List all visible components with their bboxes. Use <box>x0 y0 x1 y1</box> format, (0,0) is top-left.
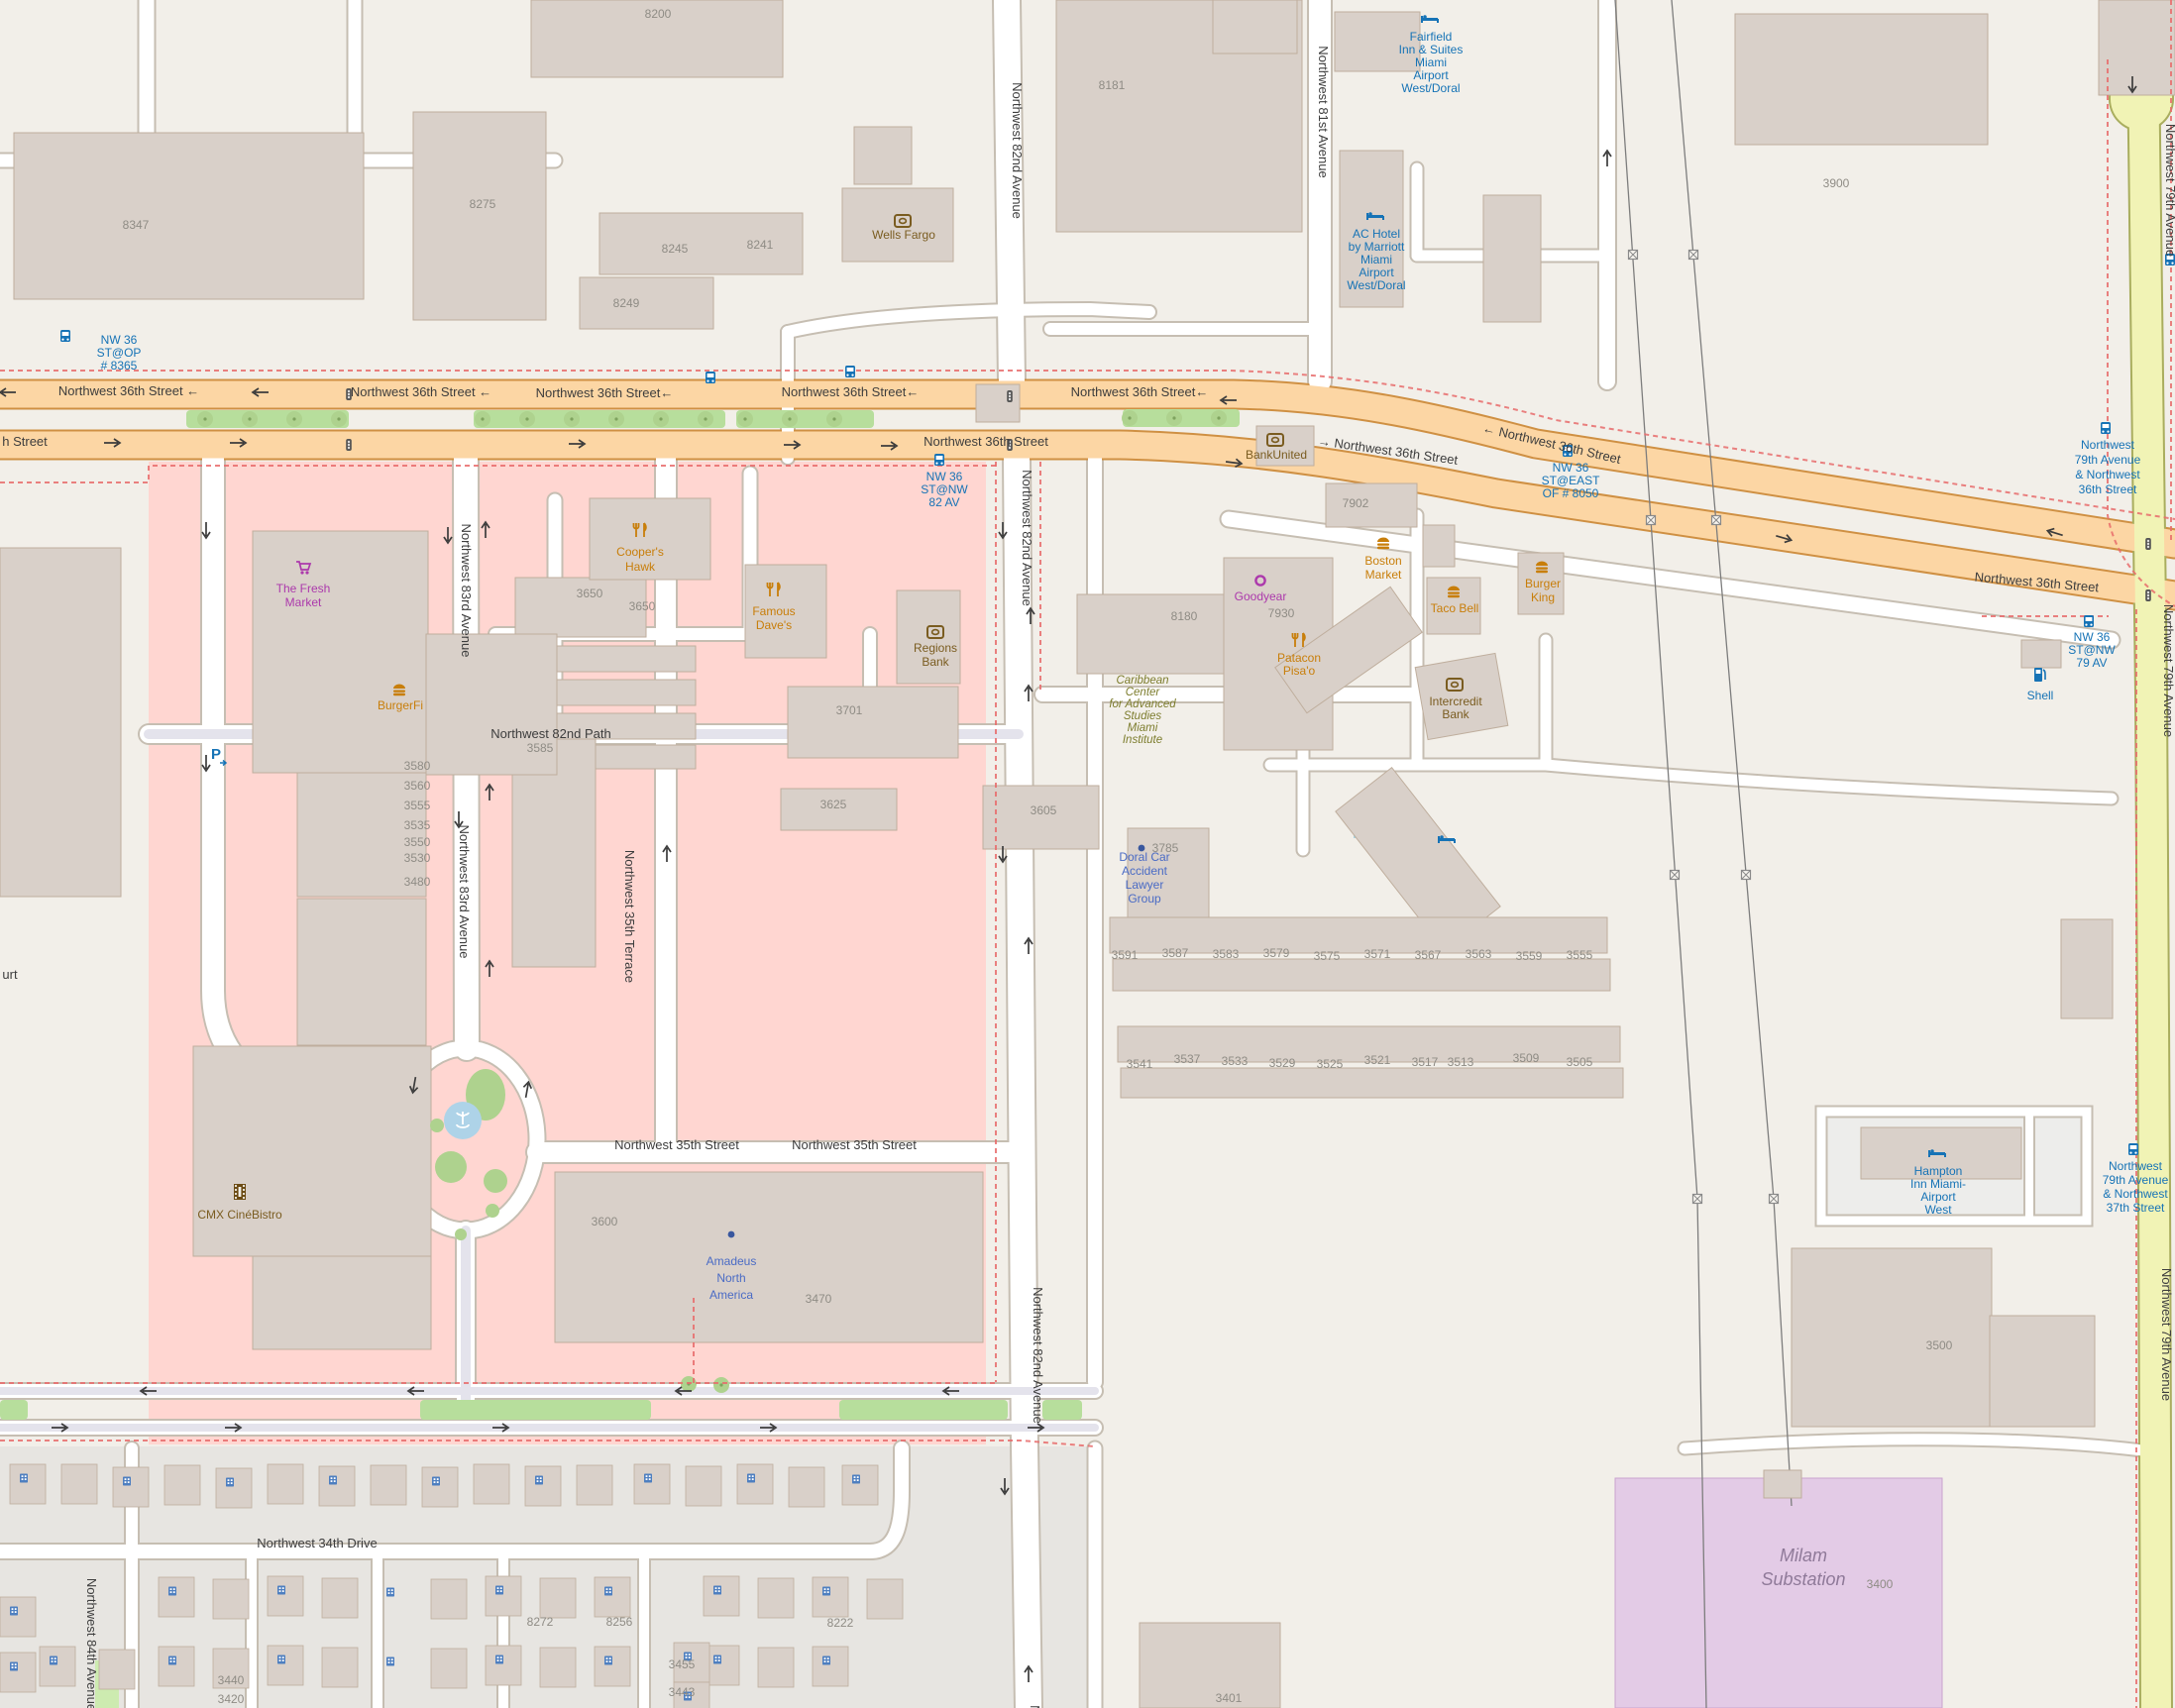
apt-icon <box>644 1474 652 1483</box>
poi-label-milam-substation: Substation <box>1761 1569 1845 1589</box>
poi-label-boston-market: Market <box>1365 568 1402 582</box>
poi-label-amadeus-north-america: America <box>709 1288 753 1302</box>
house-building <box>268 1464 303 1504</box>
house-building <box>813 1577 848 1617</box>
street-label: Northwest 79th Avenue <box>2159 1268 2174 1401</box>
poi-label-famous-daves: Famous <box>752 604 795 618</box>
dot-icon <box>728 1231 735 1238</box>
house-building <box>540 1578 576 1618</box>
building <box>854 127 912 184</box>
hotel-label-hampton-inn: West <box>1924 1203 1952 1217</box>
film-icon <box>234 1184 246 1200</box>
poi-label-burger-king: King <box>1531 590 1555 604</box>
housenumber-label: 3560 <box>404 779 431 793</box>
housenumber-label: 3600 <box>592 1215 618 1228</box>
house-building <box>0 1597 36 1637</box>
building <box>1764 1470 1801 1498</box>
house-building <box>113 1467 149 1507</box>
housenumber-label: 3650 <box>577 587 603 600</box>
bus-stop-label-nw-79-av-nw-37-st: & Northwest <box>2103 1187 2168 1201</box>
median-strip <box>0 1400 28 1420</box>
poi-label-goodyear: Goodyear <box>1235 589 1287 603</box>
fountain-icon <box>444 1102 482 1139</box>
busicon-icon <box>60 330 70 342</box>
tree-dot <box>743 417 746 420</box>
housenumber-label: 3541 <box>1127 1057 1153 1071</box>
tree-dot <box>832 417 835 420</box>
housenumber-label: 3505 <box>1567 1055 1593 1069</box>
house-building <box>319 1466 355 1506</box>
building <box>1121 1068 1623 1098</box>
housenumber-label: 8249 <box>613 296 640 310</box>
bus-stop-label-nw-36-st-nw-79-av: 79 AV <box>2076 656 2107 670</box>
housenumber-label: 3529 <box>1269 1056 1296 1070</box>
map-viewport[interactable]: P Northwest 36th Street ←Northwest 36th … <box>0 0 2175 1708</box>
building <box>413 112 546 320</box>
housenumber-label: 3555 <box>1567 948 1593 962</box>
poi-label-caribbean-center: Studies <box>1124 710 1162 722</box>
house-building <box>704 1576 739 1616</box>
hotel-label-ac-hotel-marriott: AC Hotel <box>1353 227 1400 241</box>
housenumber-label: 3583 <box>1213 947 1240 961</box>
apt-icon <box>50 1656 57 1665</box>
housenumber-label: 7902 <box>1343 496 1369 510</box>
housenumber-label: 3517 <box>1412 1055 1439 1069</box>
bed-icon <box>1422 15 1438 23</box>
housenumber-label: 3900 <box>1823 176 1850 190</box>
building <box>193 1046 431 1256</box>
apt-icon <box>495 1586 503 1595</box>
apt-icon <box>604 1587 612 1596</box>
street-label: Northwest 79th Avenue <box>2161 604 2175 737</box>
apt-icon <box>123 1477 131 1486</box>
poi-label-milam-substation: Milam <box>1780 1546 1827 1565</box>
tree-dot <box>481 417 484 420</box>
poi-label-wells-fargo: Wells Fargo <box>872 228 935 242</box>
poi-label-doral-car-accident-lawyer-group: Group <box>1128 892 1161 906</box>
housenumber-label: 3571 <box>1364 947 1391 961</box>
hotel-label-hampton-inn: Airport <box>1920 1190 1956 1204</box>
building <box>1335 12 1420 71</box>
street-label: Northwest 35th Terrace <box>622 850 637 983</box>
housenumber-label: 7930 <box>1268 606 1295 620</box>
house-building <box>867 1579 903 1619</box>
housenumber-label: 3587 <box>1162 946 1189 960</box>
house-building <box>61 1464 97 1504</box>
bus-stop-label-nw-36-st-op-8365: # 8365 <box>101 359 138 373</box>
housenumber-label: 3537 <box>1174 1052 1201 1066</box>
housenumber-label: 3567 <box>1415 948 1442 962</box>
housenumber-label: 3455 <box>669 1657 696 1671</box>
apt-icon <box>713 1586 721 1595</box>
building <box>1483 195 1541 322</box>
house-building <box>431 1579 467 1619</box>
white-road <box>1017 458 1029 1708</box>
house-building <box>474 1464 509 1504</box>
street-label: Northwest 34th Drive <box>257 1536 377 1550</box>
housenumber-label: 3440 <box>218 1673 245 1687</box>
street-label: Northwest 82nd Avenue <box>1010 82 1025 219</box>
bus-stop-label-nw-79-av-nw-36-st: 79th Avenue <box>2075 453 2141 467</box>
street-label: urt <box>2 967 18 982</box>
bus-stop-label-nw-79-av-nw-36-st: & Northwest <box>2075 468 2140 481</box>
apt-icon <box>604 1656 612 1665</box>
bus-stop-label-nw-36-st-east-of-8050: NW 36 <box>1553 461 1589 475</box>
street-label: Northwest 82nd Avenue <box>1020 470 1034 606</box>
poi-label-intercredit-bank: Intercredit <box>1429 694 1482 708</box>
substation-area <box>1615 1478 1942 1708</box>
housenumber-label: 8275 <box>470 197 496 211</box>
building <box>1213 0 1297 53</box>
bus-stop-label-nw-36-st-nw-82-av: NW 36 <box>926 470 963 483</box>
housenumber-label: 3535 <box>404 818 431 832</box>
traffic-light-icon <box>1007 390 1013 402</box>
bus-stop-label-nw-36-st-east-of-8050: OF # 8050 <box>1543 486 1599 500</box>
housenumber-label: 8241 <box>747 238 774 252</box>
poi-label-amadeus-north-america: Amadeus <box>707 1254 757 1268</box>
bus-stop-label-nw-79-av-nw-37-st: 79th Avenue <box>2103 1173 2169 1187</box>
housenumber-label: 3585 <box>527 741 554 755</box>
building <box>1326 483 1417 527</box>
bus-stop-label-nw-79-av-nw-36-st: Northwest <box>2081 438 2135 452</box>
tree-dot <box>788 417 791 420</box>
bus-stop-label-nw-36-st-op-8365: ST@OP <box>97 346 142 360</box>
housenumber-label: 3530 <box>404 851 431 865</box>
traffic-light-icon <box>2145 538 2151 550</box>
house-building <box>595 1647 630 1686</box>
house-building <box>595 1577 630 1617</box>
building <box>976 384 1020 422</box>
bus-stop-label-nw-36-st-nw-79-av: ST@NW <box>2068 643 2116 657</box>
poi-label-caribbean-center: Miami <box>1128 722 1158 734</box>
bus-stop-label-nw-79-av-nw-37-st: 37th Street <box>2107 1201 2165 1215</box>
housenumber-label: 3650 <box>629 599 656 613</box>
house-building <box>540 1648 576 1687</box>
house-building <box>813 1647 848 1686</box>
tree-dot <box>704 417 707 420</box>
housenumber-label: 3555 <box>404 799 431 812</box>
street-label: Northwest 35th Street <box>792 1137 917 1152</box>
housenumber-label: 3509 <box>1513 1051 1540 1065</box>
tree-dot <box>1128 416 1131 419</box>
traffic-light-icon <box>2145 589 2151 601</box>
poi-label-bankunited: BankUnited <box>1246 448 1307 462</box>
building <box>842 188 953 262</box>
housenumber-label: 3500 <box>1926 1338 1953 1352</box>
house-building <box>525 1466 561 1506</box>
housenumber-label: 3420 <box>218 1692 245 1706</box>
house-building <box>789 1467 824 1507</box>
apt-icon <box>168 1587 176 1596</box>
apt-icon <box>822 1656 830 1665</box>
housenumber-label: 8181 <box>1099 78 1126 92</box>
apt-icon <box>852 1475 860 1484</box>
traffic-light-icon <box>346 439 352 451</box>
house-building <box>0 1653 36 1692</box>
tree-dot <box>659 417 662 420</box>
poi-label-patacon-pisao: Patacon <box>1277 651 1321 665</box>
tree-dot <box>570 417 573 420</box>
housenumber-label: 3470 <box>806 1292 832 1306</box>
apt-icon <box>495 1655 503 1664</box>
grass-patch <box>455 1228 467 1240</box>
tree-dot <box>337 417 340 420</box>
house-building <box>216 1468 252 1508</box>
power-pylon-icon <box>1693 1195 1702 1204</box>
house-building <box>431 1649 467 1688</box>
bus-stop-label-nw-36-st-nw-82-av: 82 AV <box>928 495 959 509</box>
housenumber-label: 8347 <box>123 218 150 232</box>
street-label: Northwest 35th Street <box>614 1137 739 1152</box>
building <box>297 899 426 1045</box>
housenumber-label: 3575 <box>1314 949 1341 963</box>
poi-label-regions-bank: Regions <box>914 641 957 655</box>
apt-icon <box>432 1477 440 1486</box>
bus-stop-label-nw-79-av-nw-36-st: 36th Street <box>2079 482 2137 496</box>
building <box>1792 1248 1992 1427</box>
apt-icon <box>168 1656 176 1665</box>
poi-label-burger-king: Burger <box>1525 577 1561 590</box>
housenumber-label: 8180 <box>1171 609 1198 623</box>
tree-dot <box>292 417 295 420</box>
busicon-icon <box>2128 1143 2138 1155</box>
apt-icon <box>822 1587 830 1596</box>
house-building <box>322 1578 358 1618</box>
house-building <box>686 1466 721 1506</box>
hotel-label-fairfield-inn-suites: West/Doral <box>1401 81 1460 95</box>
median-strip <box>474 410 725 428</box>
poi-label-burgerfi: BurgerFi <box>378 698 423 712</box>
house-building <box>159 1577 194 1617</box>
busicon-icon <box>845 366 855 377</box>
white-road <box>1546 765 2112 799</box>
median-strip <box>1042 1400 1082 1420</box>
poi-label-caribbean-center: Caribbean <box>1116 675 1168 687</box>
grass-patch <box>435 1151 467 1183</box>
bus-stop-label-nw-36-st-nw-79-av: NW 36 <box>2074 630 2111 644</box>
tree-dot <box>203 417 206 420</box>
bus-stop-label-nw-36-st-nw-82-av: ST@NW <box>921 482 968 496</box>
housenumber-label: 3521 <box>1364 1053 1391 1067</box>
poi-label-coopers-hawk: Hawk <box>625 560 656 574</box>
poi-label-intercredit-bank: Bank <box>1442 707 1469 721</box>
poi-label-amadeus-north-america: North <box>716 1271 745 1285</box>
house-building <box>758 1578 794 1618</box>
poi-label-boston-market: Boston <box>1364 554 1401 568</box>
apt-icon <box>10 1607 18 1616</box>
housenumber-label: 3591 <box>1112 948 1139 962</box>
building <box>788 687 958 758</box>
housenumber-label: 8200 <box>645 7 672 21</box>
poi-label-the-fresh-market: The Fresh <box>276 582 331 595</box>
svg-text:P: P <box>211 746 221 763</box>
house-building <box>634 1464 670 1504</box>
housenumber-label: 8222 <box>827 1616 854 1630</box>
apt-icon <box>386 1588 394 1597</box>
building <box>1735 14 1988 145</box>
hotel-label-hampton-inn: Inn Miami- <box>1910 1177 1966 1191</box>
poi-label-doral-car-accident-lawyer-group: Lawyer <box>1126 878 1164 892</box>
building <box>555 1172 983 1342</box>
bus-stop-label-nw-36-st-op-8365: NW 36 <box>101 333 138 347</box>
house-building <box>268 1646 303 1685</box>
apt-icon <box>386 1657 394 1666</box>
poi-label-doral-car-accident-lawyer-group: Doral Car <box>1119 850 1169 864</box>
poi-label-patacon-pisao: Pisa'o <box>1283 664 1316 678</box>
power-pylon-icon <box>1647 516 1656 525</box>
housenumber-label: 3513 <box>1448 1055 1474 1069</box>
hotel-label-ac-hotel-marriott: Airport <box>1359 266 1394 279</box>
power-pylon-icon <box>1689 251 1698 260</box>
power-pylon-icon <box>1712 516 1721 525</box>
median-strip <box>736 410 874 428</box>
building <box>2099 0 2175 95</box>
housenumber-label: 3400 <box>1867 1577 1894 1591</box>
power-pylon-icon <box>1629 251 1638 260</box>
tree-dot <box>248 417 251 420</box>
apt-icon <box>535 1476 543 1485</box>
building <box>1990 1316 2095 1427</box>
street-label: Northwest 83rd Avenue <box>457 825 472 959</box>
power-pylon-icon <box>1770 1195 1779 1204</box>
hotel-label-fairfield-inn-suites: Fairfield <box>1410 30 1453 44</box>
street-label: Northwest 36th Street ← <box>58 383 199 398</box>
apt-icon <box>329 1476 337 1485</box>
housenumber-label: 3563 <box>1466 947 1492 961</box>
housenumber-label: 3559 <box>1516 949 1543 963</box>
housenumber-label: 3605 <box>1031 803 1057 817</box>
building <box>253 1256 431 1349</box>
street-label: Northwest 82nd Avenue <box>1031 1287 1045 1424</box>
poi-label-caribbean-center: for Advanced <box>1109 698 1176 710</box>
street-label: Northwest 79th Avenue <box>2163 124 2175 257</box>
hotel-label-ac-hotel-marriott: Miami <box>1360 253 1392 267</box>
street-label: h Street <box>2 434 48 449</box>
poi-label-caribbean-center: Institute <box>1123 734 1162 746</box>
grass-patch <box>486 1204 499 1218</box>
house-building <box>213 1579 249 1619</box>
hotel-label-hampton-inn: Hampton <box>1914 1164 1963 1178</box>
house-building <box>99 1650 135 1689</box>
housenumber-label: 3525 <box>1317 1057 1344 1071</box>
power-pylon-icon <box>1671 871 1680 880</box>
building <box>0 548 121 897</box>
street-label: Northwest 81st Avenue <box>1316 46 1331 177</box>
tree-dot <box>614 417 617 420</box>
poi-label-taco-bell: Taco Bell <box>1431 601 1479 615</box>
house-building <box>268 1576 303 1616</box>
housenumber-label: 8256 <box>606 1615 633 1629</box>
tree-dot <box>1172 416 1175 419</box>
tree-dot <box>525 417 528 420</box>
poi-label-famous-daves: Dave's <box>756 618 792 632</box>
power-line <box>1672 0 1792 1506</box>
apt-icon <box>226 1478 234 1487</box>
house-building <box>758 1648 794 1687</box>
busicon-icon <box>2101 422 2111 434</box>
poi-label-coopers-hawk: Cooper's <box>616 545 664 559</box>
housenumber-label: 3443 <box>669 1685 696 1699</box>
apt-icon <box>20 1474 28 1483</box>
house-building <box>422 1467 458 1507</box>
apt-icon <box>277 1586 285 1595</box>
street-label: Northwest 36th Street← <box>1071 384 1209 399</box>
housenumber-label: 8245 <box>662 242 689 256</box>
housenumber-label: 3533 <box>1222 1054 1249 1068</box>
map-canvas[interactable]: P Northwest 36th Street ←Northwest 36th … <box>0 0 2175 1708</box>
house-building <box>842 1465 878 1505</box>
fuel-icon <box>2034 668 2045 682</box>
hotel-label-ac-hotel-marriott: West/Doral <box>1347 278 1405 292</box>
building <box>2061 919 2113 1018</box>
street-label: Northwest 82nd Path <box>490 726 610 741</box>
poi-label-doral-car-accident-lawyer-group: Accident <box>1122 864 1168 878</box>
house-building <box>577 1465 612 1505</box>
median-strip <box>420 1400 651 1420</box>
hotel-label-fairfield-inn-suites: Airport <box>1413 68 1449 82</box>
building <box>580 277 713 329</box>
street-label: Northwest 36th Street← <box>782 384 920 399</box>
house-building <box>371 1465 406 1505</box>
power-pylon-icon <box>1742 871 1751 880</box>
busicon-icon <box>934 454 944 466</box>
apt-icon <box>277 1655 285 1664</box>
housenumber-label: 3625 <box>820 798 847 811</box>
tree-dot <box>1217 416 1220 419</box>
apt-icon <box>747 1474 755 1483</box>
busicon-icon <box>2084 615 2094 627</box>
poi-label-shell: Shell <box>2027 689 2054 702</box>
bus-stop-label-nw-36-st-east-of-8050: ST@EAST <box>1542 474 1601 487</box>
housenumber-label: 8272 <box>527 1615 554 1629</box>
house-building <box>737 1464 773 1504</box>
house-building <box>486 1646 521 1685</box>
hotel-label-fairfield-inn-suites: Inn & Suites <box>1399 43 1464 56</box>
housenumber-label: 3701 <box>836 703 863 717</box>
building <box>1113 959 1610 991</box>
building <box>253 531 428 773</box>
street-label: Northwest 36th Street ← <box>351 384 491 399</box>
housenumber-label: 3480 <box>404 875 431 889</box>
busicon-icon <box>706 372 715 383</box>
hotel-label-fairfield-inn-suites: Miami <box>1415 55 1447 69</box>
house-building <box>486 1576 521 1616</box>
building <box>983 786 1099 849</box>
house-building <box>322 1648 358 1687</box>
poi-label-cmx-cinebistro: CMX CinéBistro <box>197 1208 282 1222</box>
building <box>2021 640 2061 668</box>
hotel-label-ac-hotel-marriott: by Marriott <box>1349 240 1405 254</box>
house-building <box>159 1647 194 1686</box>
housenumber-label: 3401 <box>1216 1691 1243 1705</box>
bus-stop-label-nw-79-av-nw-37-st: Northwest <box>2109 1159 2163 1173</box>
house-building <box>10 1464 46 1504</box>
house-building <box>164 1465 200 1505</box>
poi-label-regions-bank: Bank <box>922 655 949 669</box>
building <box>14 133 364 299</box>
street-label: Northwest 36th Street <box>924 434 1048 449</box>
street-label: Northwest 83rd Avenue <box>459 524 474 658</box>
grass-patch <box>430 1119 444 1132</box>
poi-label-caribbean-center: Center <box>1126 687 1161 698</box>
poi-label-the-fresh-market: Market <box>285 595 322 609</box>
secondary-road <box>2142 0 2156 1708</box>
apt-icon <box>713 1655 721 1664</box>
housenumber-label: 3550 <box>404 835 431 849</box>
grass-patch <box>484 1169 507 1193</box>
building <box>1423 525 1455 567</box>
median-strip <box>839 1400 1008 1420</box>
